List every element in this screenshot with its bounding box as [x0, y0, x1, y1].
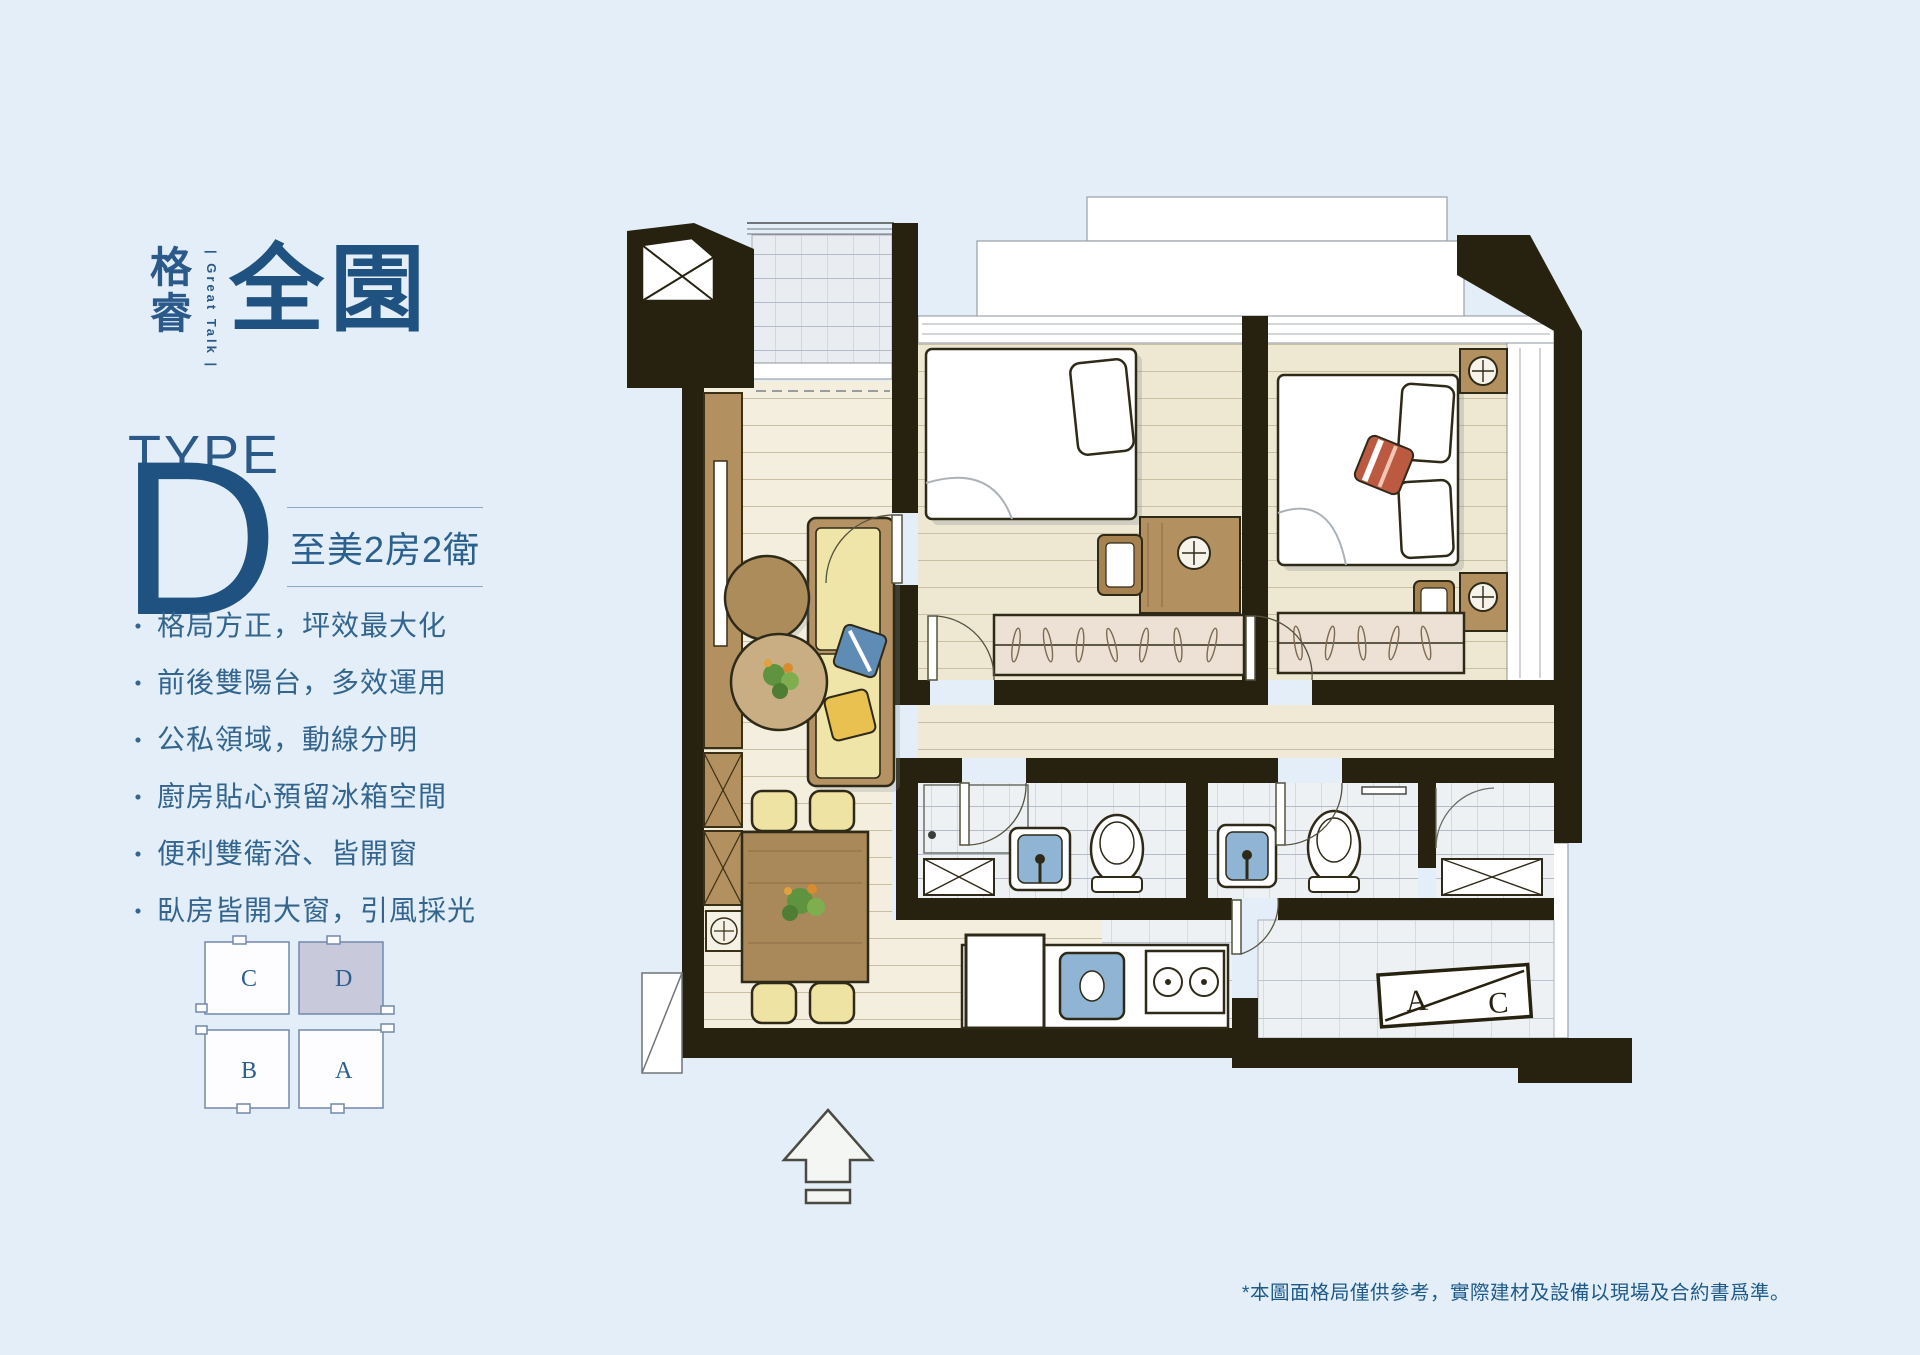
keyplan-label-b: B — [241, 1058, 257, 1084]
ac-label-a: A — [1405, 984, 1429, 1018]
ac-label-c: C — [1487, 986, 1509, 1020]
feature-list: ・格局方正，坪效最大化 ・前後雙陽台，多效運用 ・公私領域，動線分明 ・廚房貼心… — [126, 612, 476, 954]
keyplan-label-d: D — [335, 966, 352, 992]
entry-door — [642, 973, 682, 1073]
feature-item: ・公私領域，動線分明 — [126, 726, 476, 754]
brand-name-top: 格 — [150, 246, 192, 292]
brand-lockup: 格 睿 | Great Talk | 全園 — [150, 246, 431, 388]
feature-item: ・便利雙衛浴、皆開窗 — [126, 840, 476, 868]
keyplan-label-c: C — [241, 966, 257, 992]
pipe-shaft-icon — [642, 238, 714, 301]
brand-name: 格 睿 — [150, 246, 192, 338]
floorplan: A C — [542, 183, 1632, 1088]
feature-item: ・前後雙陽台，多效運用 — [126, 669, 476, 697]
brand-name-bottom: 睿 — [150, 292, 192, 338]
sofa — [808, 518, 900, 792]
feature-item: ・廚房貼心預留冰箱空間 — [126, 783, 476, 811]
toilet-icon — [1308, 811, 1360, 892]
kitchen-counter — [962, 935, 1228, 1028]
keyplan-label-a: A — [335, 1058, 353, 1084]
brand-tagline: | Great Talk | — [204, 250, 219, 388]
feature-item: ・格局方正，坪效最大化 — [126, 612, 476, 640]
keyplan-diagram: C D B A — [193, 926, 408, 1161]
brand-logotype: 全園 — [229, 240, 431, 340]
feature-item: ・臥房皆開大窗，引風採光 — [126, 897, 476, 925]
type-letter: D — [120, 448, 279, 628]
toilet-icon — [1091, 815, 1143, 892]
type-subtitle: 至美2房2衛 — [287, 507, 483, 587]
disclaimer-text: *本圖面格局僅供參考，實際建材及設備以現場及合約書爲準。 — [1242, 1276, 1790, 1305]
ac-unit-box: A C — [1378, 965, 1531, 1028]
north-arrow-icon — [780, 1106, 876, 1206]
